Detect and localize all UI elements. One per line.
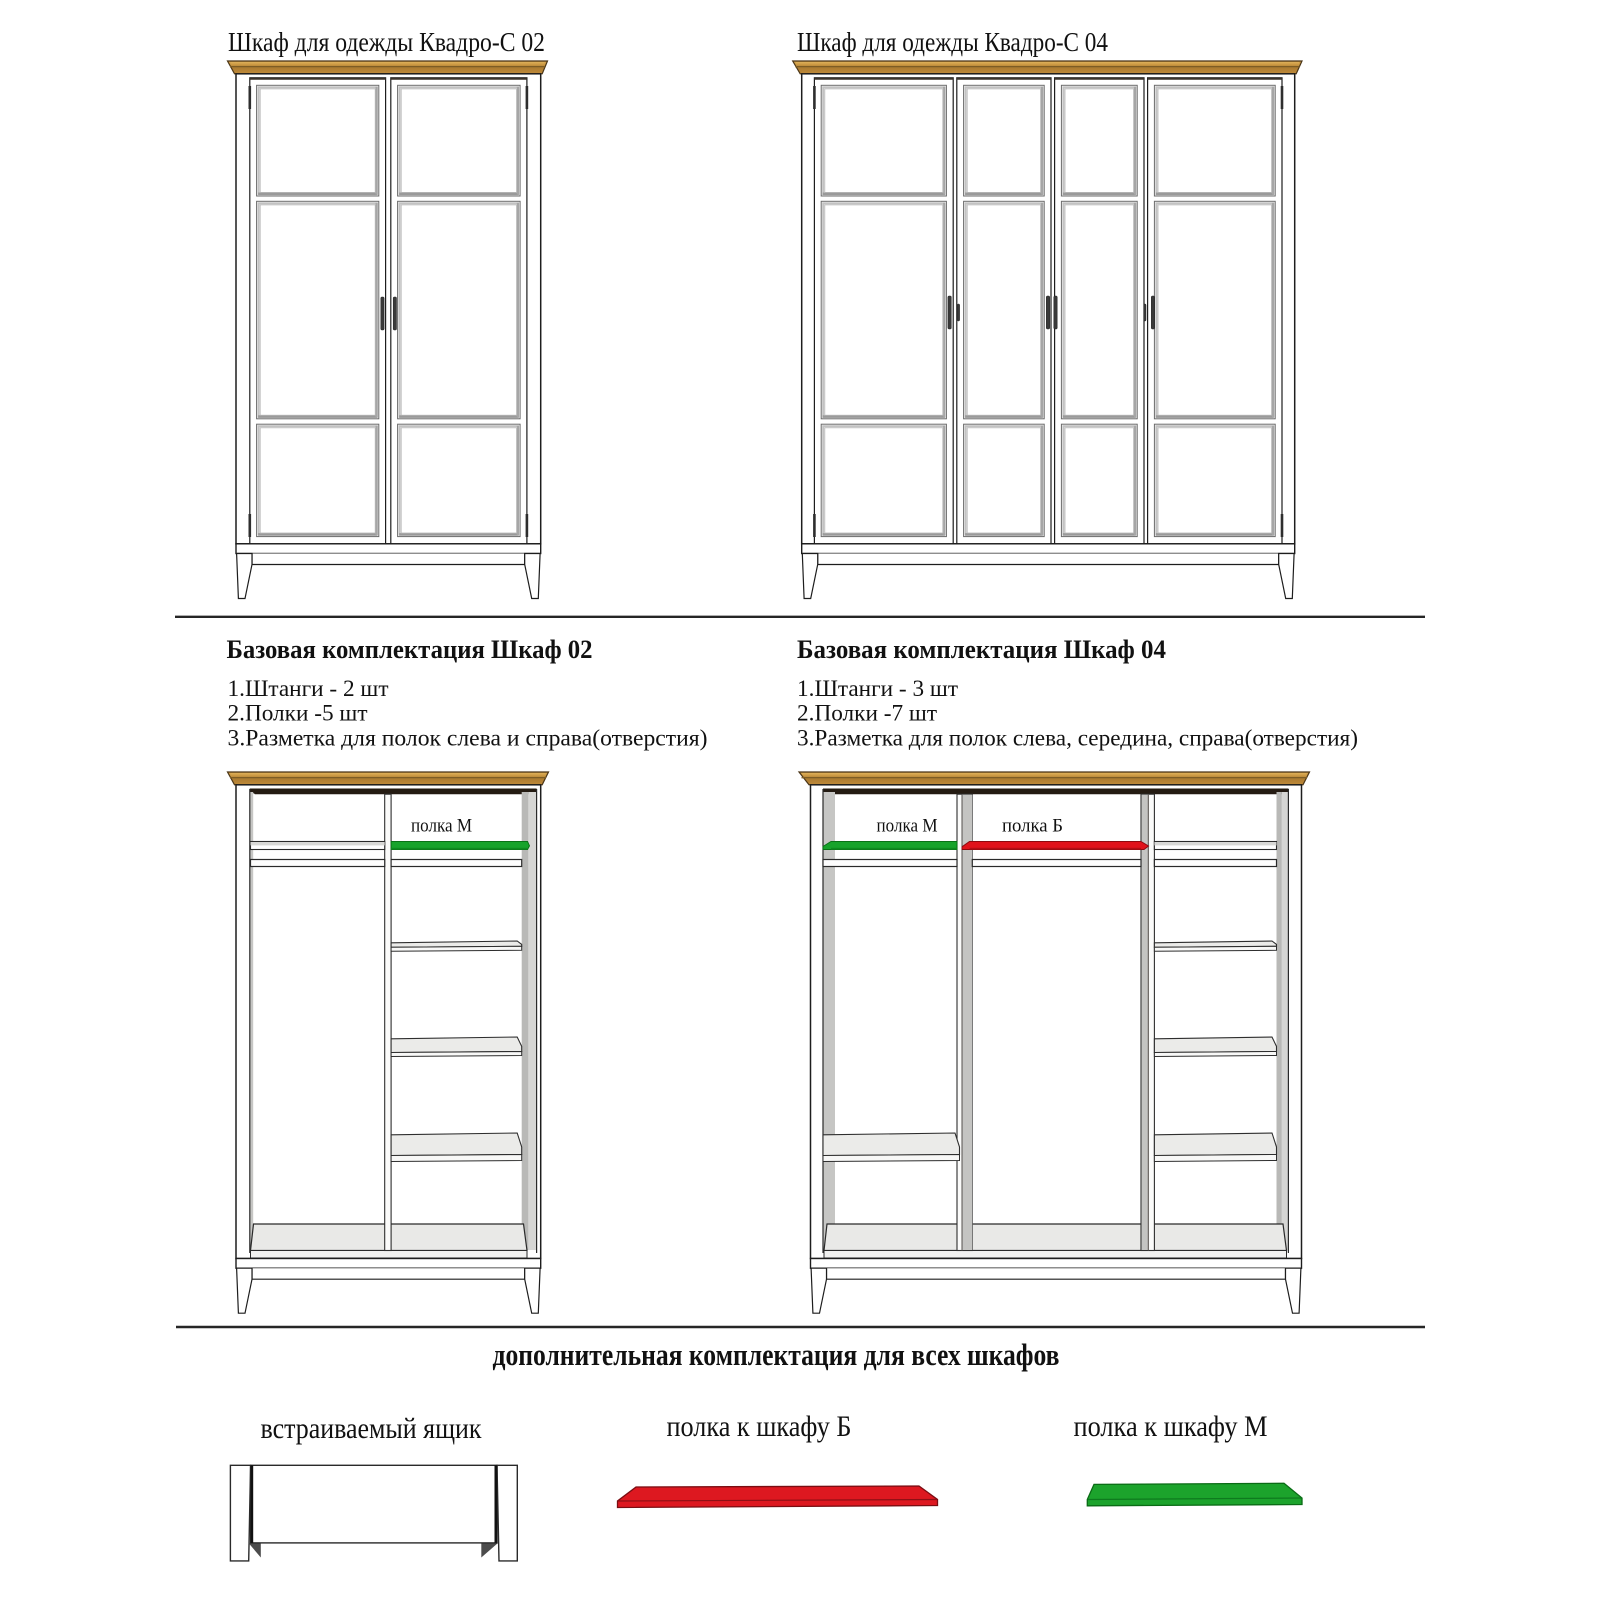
svg-text:2.Полки -7 шт: 2.Полки -7 шт (797, 701, 937, 726)
svg-text:полка к шкафу Б: полка к шкафу Б (667, 1410, 852, 1443)
svg-text:2.Полки -5 шт: 2.Полки -5 шт (228, 701, 368, 726)
svg-text:полка к шкафу М: полка к шкафу М (1074, 1410, 1268, 1443)
svg-text:дополнительная комплектация дл: дополнительная комплектация для всех шка… (493, 1337, 1060, 1372)
svg-text:Базовая комплектация Шкаф 04: Базовая комплектация Шкаф 04 (797, 635, 1166, 664)
svg-text:полка М: полка М (411, 816, 472, 837)
svg-text:3.Разметка для полок слева и с: 3.Разметка для полок слева и справа(отве… (228, 725, 708, 750)
svg-text:встраиваемый ящик: встраиваемый ящик (261, 1412, 482, 1445)
svg-text:Шкаф для одежды Квадро-С 02: Шкаф для одежды Квадро-С 02 (228, 27, 545, 57)
svg-text:Шкаф для одежды Квадро-С 04: Шкаф для одежды Квадро-С 04 (797, 27, 1108, 57)
svg-text:3.Разметка для полок слева, се: 3.Разметка для полок слева, середина, сп… (797, 725, 1358, 750)
svg-text:1.Штанги - 2 шт: 1.Штанги - 2 шт (228, 676, 389, 701)
svg-text:полка М: полка М (877, 816, 938, 837)
svg-text:полка Б: полка Б (1002, 816, 1063, 837)
svg-text:1.Штанги - 3 шт: 1.Штанги - 3 шт (797, 676, 958, 701)
svg-text:Базовая комплектация Шкаф 02: Базовая комплектация Шкаф 02 (227, 635, 593, 664)
